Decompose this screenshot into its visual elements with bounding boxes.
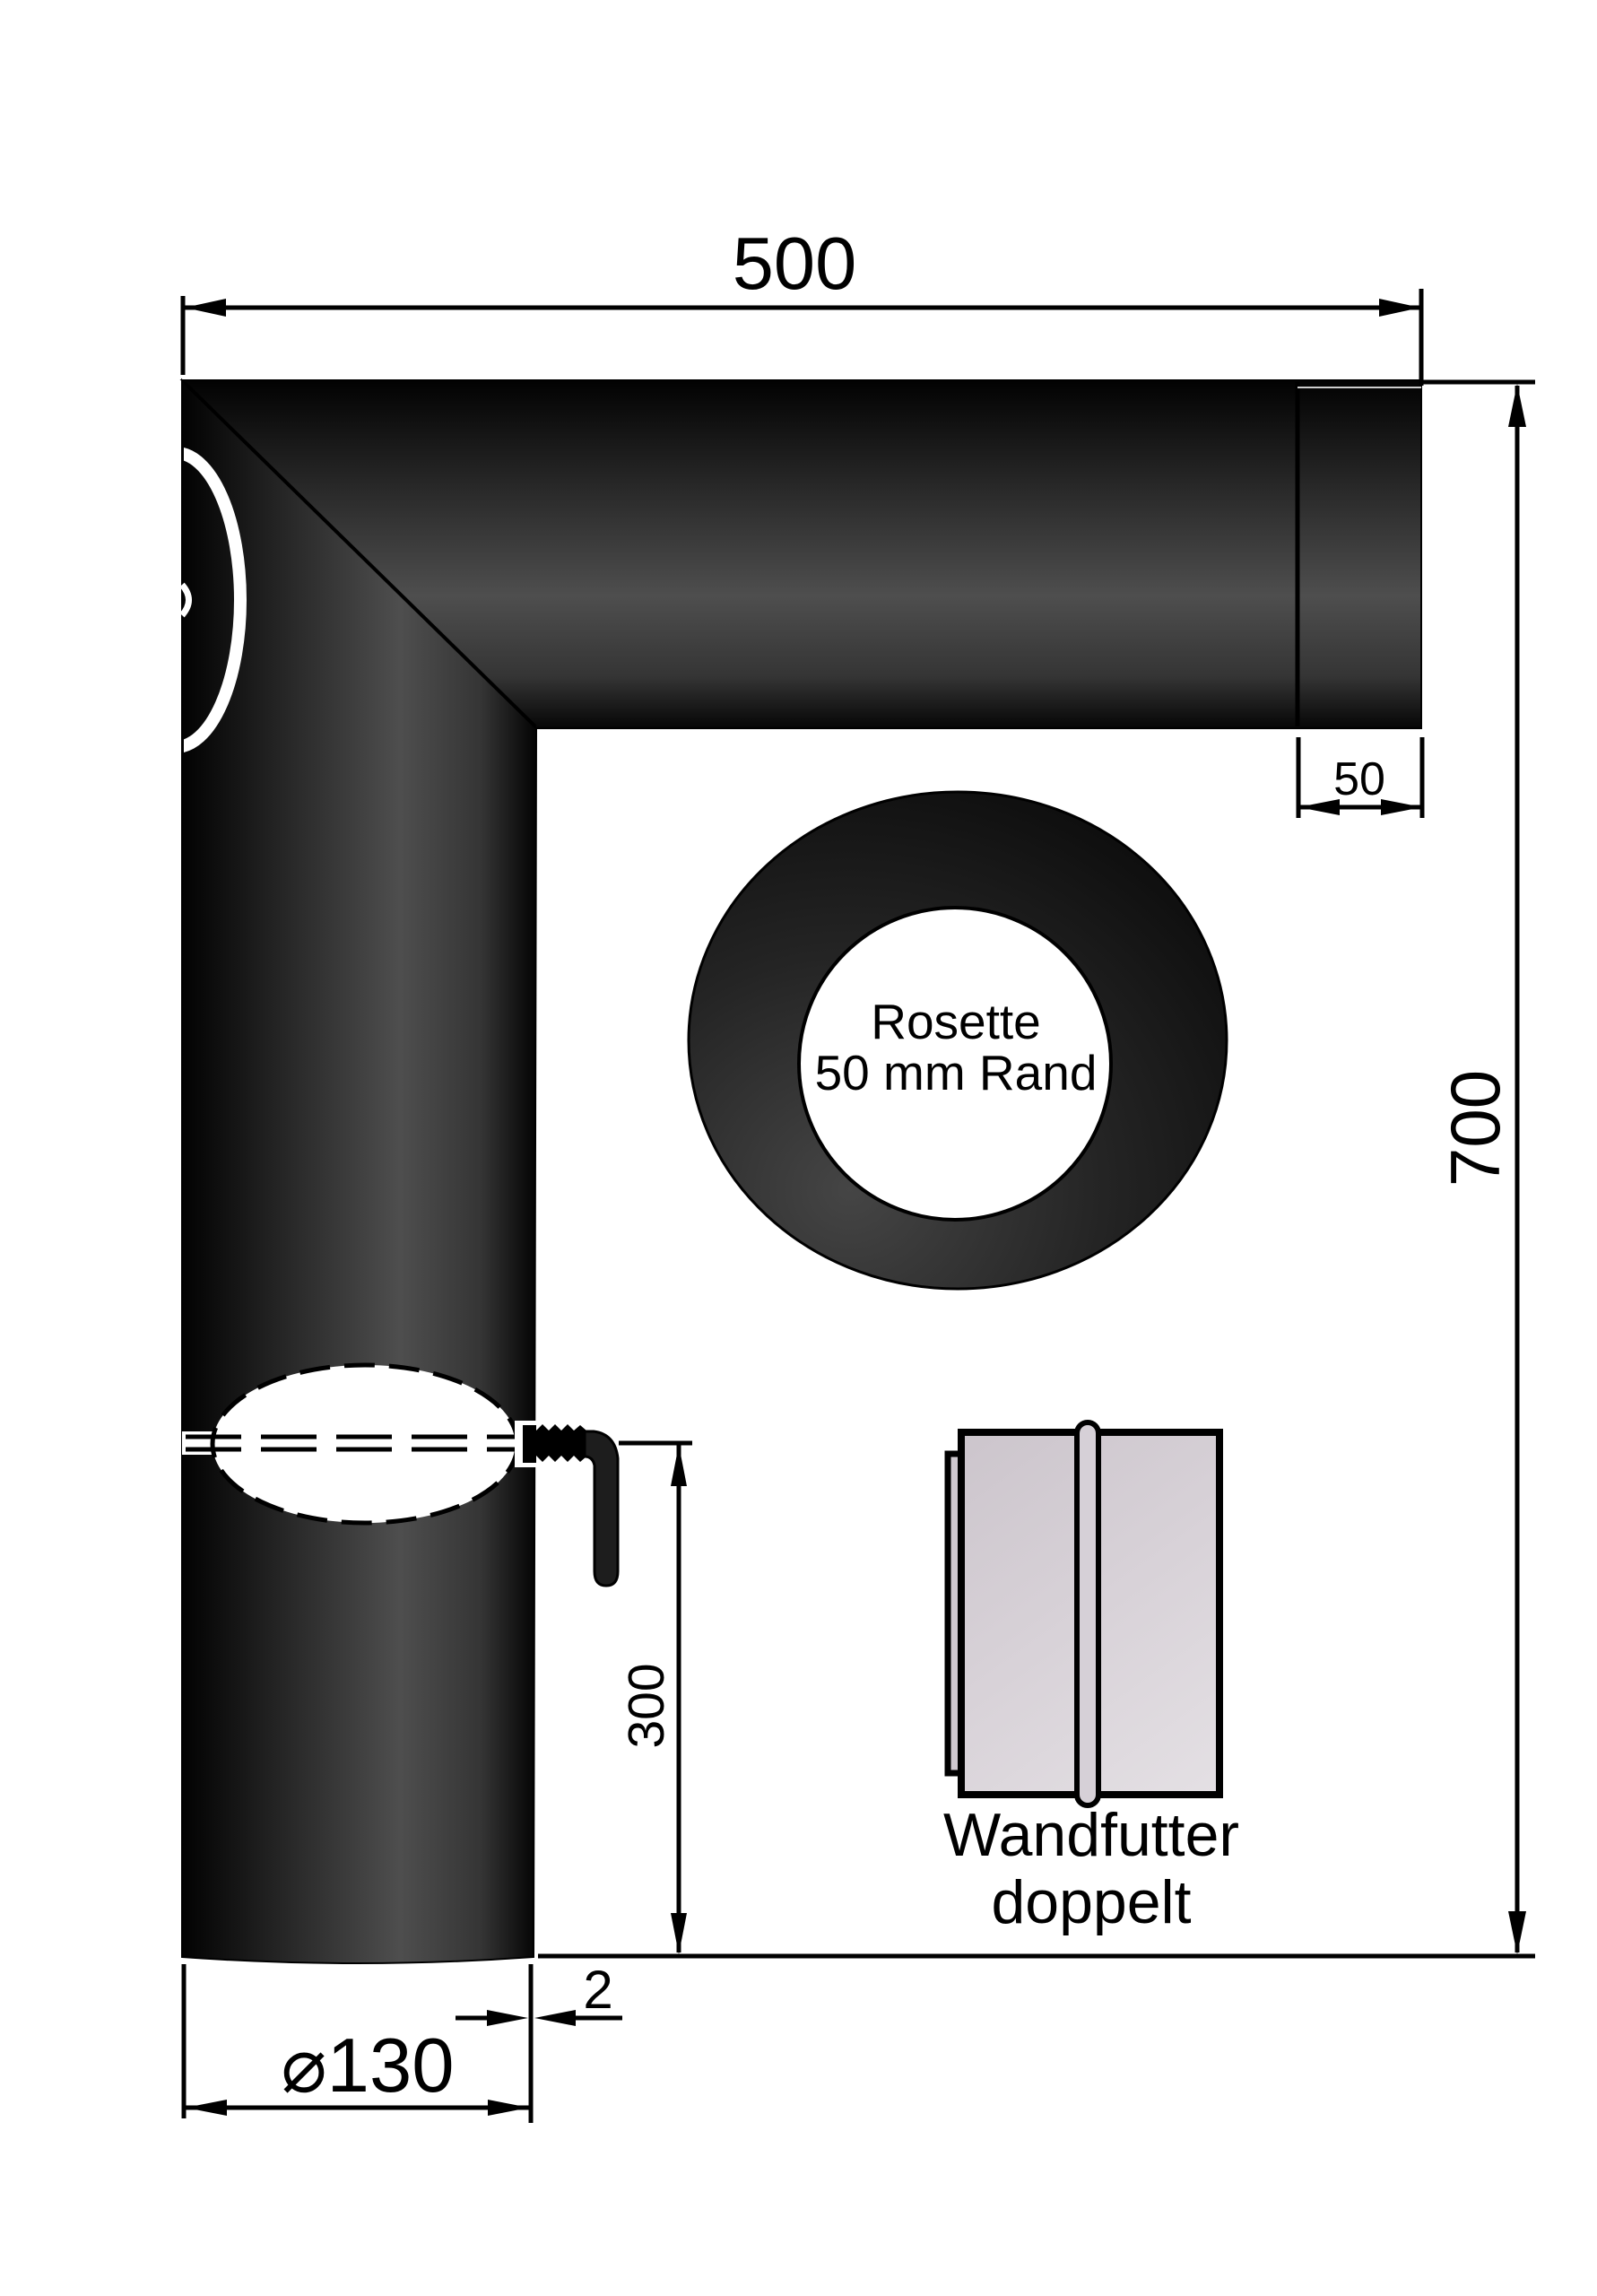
dimension-300: 300 [618, 1443, 692, 1954]
rosette-label-line1: Rosette [871, 994, 1041, 1049]
dim-50-arrow-right [1381, 799, 1422, 815]
dim-500-text: 500 [733, 222, 856, 305]
wandfutter-label-line1: Wandfutter [943, 1801, 1239, 1869]
wandfutter: Wandfutter doppelt [943, 1422, 1239, 1936]
dim-300-arrow-top [671, 1445, 687, 1486]
dim-2-arrow-right [534, 2010, 576, 2026]
technical-drawing-page: Rosette 50 mm Rand Wandfutter doppelt 50… [0, 0, 1597, 2296]
dim-300-text: 300 [618, 1663, 675, 1748]
damper-handle [585, 1431, 618, 1586]
dimension-diameter-130: ⌀130 [184, 1964, 529, 2118]
dim-700-text: 700 [1436, 1070, 1515, 1187]
dim-500-arrow-left [185, 299, 226, 317]
dim-50-text: 50 [1333, 753, 1385, 805]
rosette: Rosette 50 mm Rand [689, 792, 1227, 1289]
dim-130-text: ⌀130 [282, 2023, 455, 2109]
dimension-500: 500 [183, 222, 1421, 386]
damper-plate [213, 1365, 517, 1523]
dim-130-arrow-right [488, 2100, 529, 2116]
dim-700-arrow-top [1508, 384, 1526, 427]
dimension-2: 2 [456, 1960, 622, 2123]
wandfutter-center-ring [1077, 1422, 1098, 1805]
damper-threaded-rod [536, 1424, 586, 1462]
stove-pipe-technical-drawing: Rosette 50 mm Rand Wandfutter doppelt 50… [0, 0, 1597, 2296]
rosette-label-line2: 50 mm Rand [815, 1045, 1098, 1100]
dim-2-arrow-left [487, 2010, 528, 2026]
damper-nut [523, 1425, 536, 1463]
wandfutter-label-line2: doppelt [991, 1868, 1191, 1936]
dim-700-arrow-bottom [1508, 1911, 1526, 1954]
dim-300-arrow-bottom [671, 1913, 687, 1954]
dim-130-arrow-left [186, 2100, 227, 2116]
dimension-50: 50 [1298, 737, 1422, 818]
dim-500-arrow-right [1379, 299, 1420, 317]
dim-2-text: 2 [583, 1960, 612, 2020]
